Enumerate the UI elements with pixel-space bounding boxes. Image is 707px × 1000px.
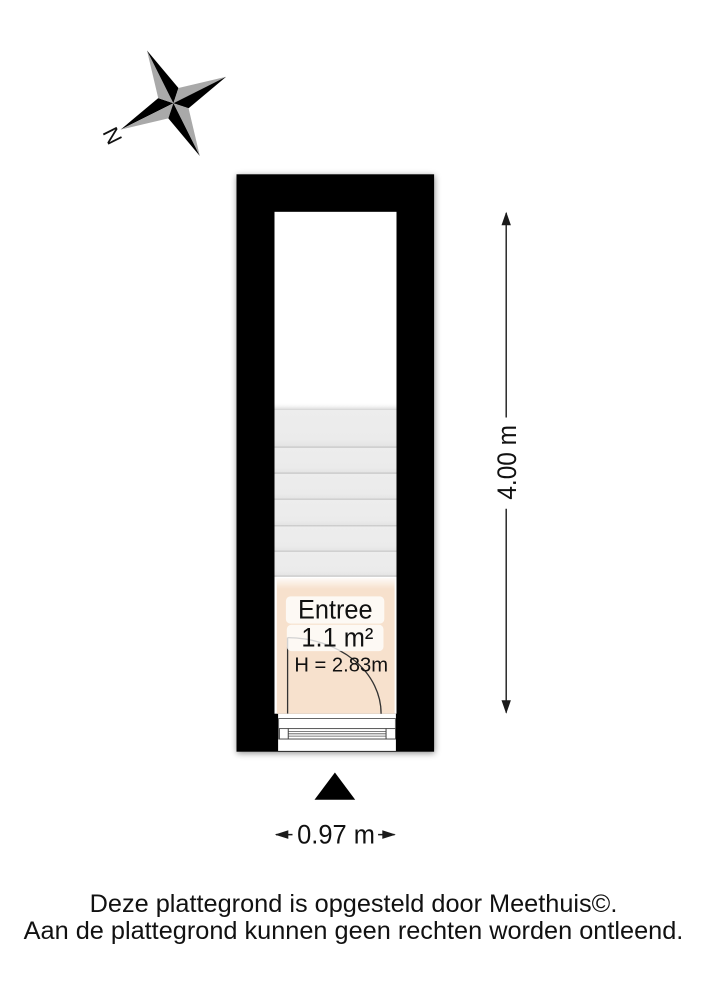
- svg-text:4.00 m: 4.00 m: [492, 425, 522, 500]
- svg-text:Deze plattegrond is opgesteld: Deze plattegrond is opgesteld door Meeth…: [90, 890, 618, 918]
- svg-text:0.97 m: 0.97 m: [297, 820, 375, 850]
- svg-text:1.1 m²: 1.1 m²: [301, 623, 373, 653]
- svg-text:H = 2.83m: H = 2.83m: [294, 654, 388, 676]
- svg-text:Entree: Entree: [298, 594, 373, 624]
- svg-text:Aan de plattegrond kunnen geen: Aan de plattegrond kunnen geen rechten w…: [24, 917, 684, 945]
- svg-text:N: N: [98, 123, 127, 148]
